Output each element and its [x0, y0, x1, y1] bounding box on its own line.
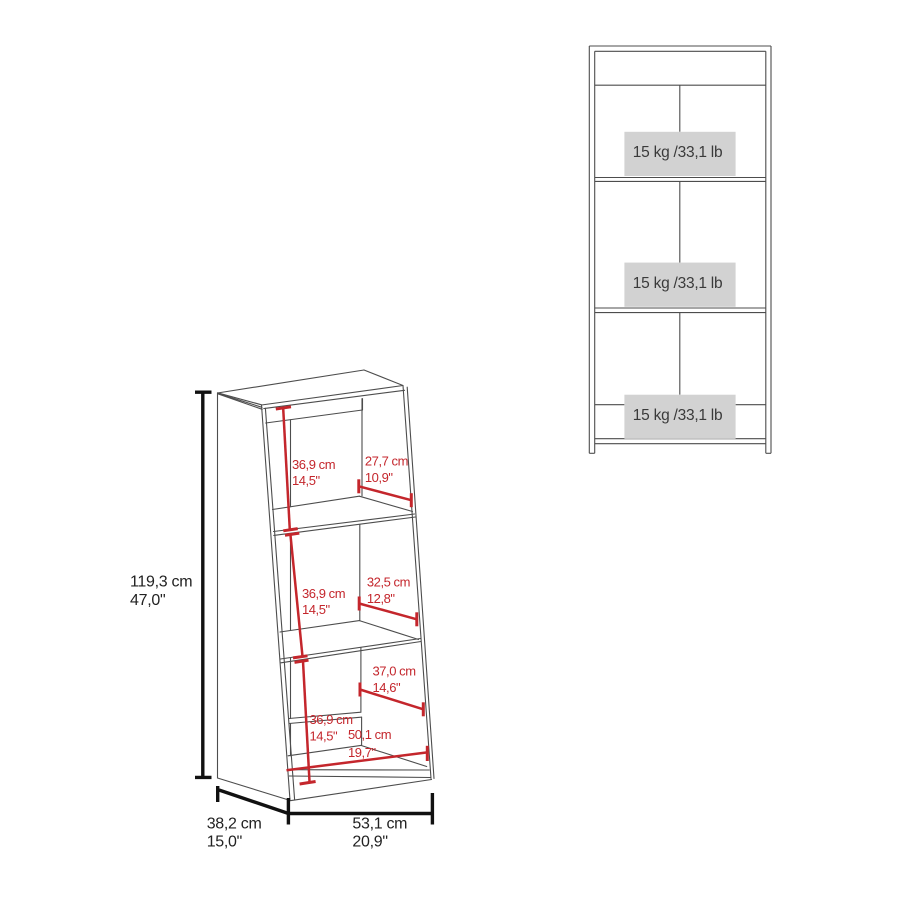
svg-text:27,7 cm: 27,7 cm [365, 454, 408, 469]
svg-text:15,0": 15,0" [207, 834, 242, 851]
svg-text:14,5": 14,5" [302, 602, 331, 617]
svg-text:32,5 cm: 32,5 cm [367, 575, 410, 590]
svg-text:37,0 cm: 37,0 cm [373, 664, 416, 679]
svg-text:20,9": 20,9" [352, 834, 387, 851]
svg-text:10,9": 10,9" [365, 470, 394, 485]
svg-text:19,7": 19,7" [348, 745, 377, 760]
svg-text:15 kg /33,1 lb: 15 kg /33,1 lb [633, 144, 723, 161]
svg-text:50,1 cm: 50,1 cm [348, 727, 391, 742]
svg-text:14,5": 14,5" [310, 728, 339, 743]
svg-text:53,1 cm: 53,1 cm [352, 816, 407, 833]
svg-text:119,3 cm: 119,3 cm [130, 574, 192, 591]
svg-text:14,6": 14,6" [373, 680, 402, 695]
svg-text:12,8": 12,8" [367, 591, 396, 606]
svg-text:38,2 cm: 38,2 cm [207, 816, 262, 833]
svg-text:47,0": 47,0" [130, 592, 165, 609]
svg-text:36,9 cm: 36,9 cm [310, 712, 353, 727]
svg-text:14,5": 14,5" [292, 473, 321, 488]
svg-text:36,9 cm: 36,9 cm [292, 457, 335, 472]
svg-text:15 kg /33,1 lb: 15 kg /33,1 lb [633, 407, 723, 424]
svg-text:15 kg /33,1 lb: 15 kg /33,1 lb [633, 275, 723, 292]
svg-text:36,9 cm: 36,9 cm [302, 586, 345, 601]
